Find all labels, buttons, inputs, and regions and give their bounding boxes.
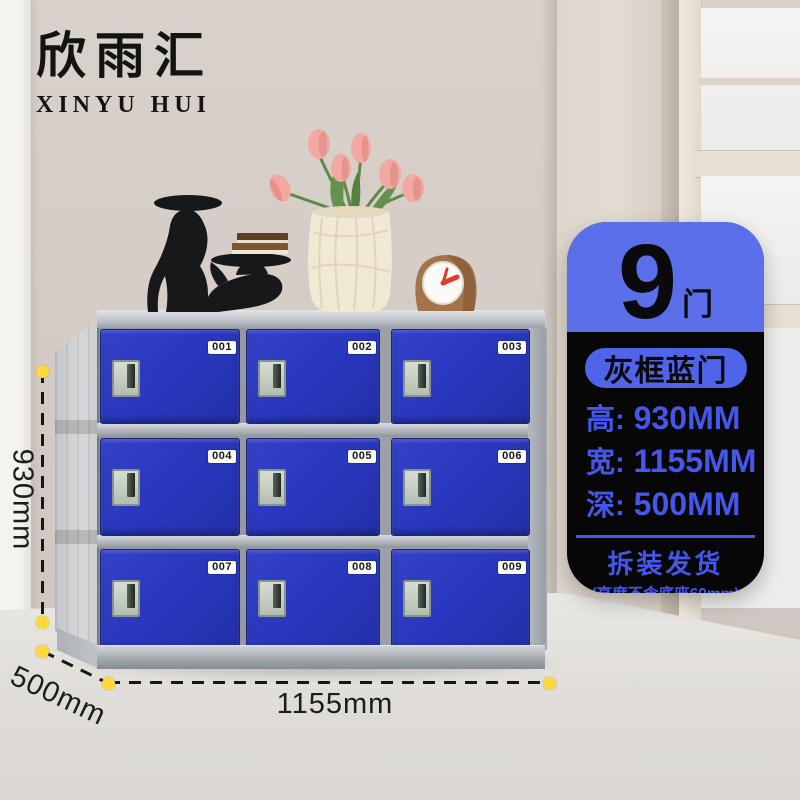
locker-door: 002 [246, 329, 380, 424]
locker-door: 009 [391, 549, 530, 651]
brand-name-english: XINYU HUI [36, 92, 213, 119]
spec-label: 高: [586, 402, 625, 438]
spec-row-depth: 深: 500MM [567, 486, 764, 524]
spec-row-width: 宽: 1155MM [567, 443, 764, 481]
door-number-label: 005 [348, 450, 376, 463]
door-number-label: 008 [348, 561, 376, 574]
door-number-label: 003 [498, 341, 526, 354]
door-handle [112, 469, 140, 506]
door-handle [258, 469, 286, 506]
decor-scene [100, 122, 490, 317]
door-number-label: 006 [498, 450, 526, 463]
spec-value: 1155MM [634, 443, 757, 479]
door-handle [258, 580, 286, 617]
door-count-header: 9 门 [567, 222, 764, 332]
door-count-unit: 门 [682, 279, 713, 324]
cabinet-base [97, 645, 545, 669]
paper-vase [308, 206, 392, 312]
width-dimension-line [108, 681, 549, 684]
cabinet-right-frame [528, 328, 545, 650]
locker-door: 001 [100, 329, 240, 424]
wooden-clock-icon [415, 255, 476, 311]
dimension-dot [543, 677, 556, 690]
door-handle [403, 580, 431, 617]
variant-badge: 灰框蓝门 [585, 348, 747, 388]
spec-label: 宽: [586, 445, 625, 481]
window-glazing-bar [701, 78, 800, 84]
door-number-label: 009 [498, 561, 526, 574]
brand-logo: 欣雨汇 XINYU HUI [36, 16, 213, 119]
product-showcase: 欣雨汇 XINYU HUI 001 002 003 004 005 006 00… [0, 0, 800, 800]
door-number-label: 002 [348, 341, 376, 354]
shipping-text: 拆装发货 [567, 544, 764, 581]
width-dimension-label: 1155mm [240, 688, 430, 721]
product-info-card: 9 门 灰框蓝门 高: 930MM 宽: 1155MM 深: 500MM 拆装发… [567, 222, 764, 593]
card-divider [576, 535, 755, 538]
spec-row-height: 高: 930MM [567, 400, 764, 438]
stacked-books-icon [232, 233, 288, 254]
spec-value: 930MM [634, 400, 741, 436]
door-number-label: 004 [208, 450, 236, 463]
locker-door: 008 [246, 549, 380, 651]
dimension-dot [36, 616, 49, 629]
lying-greyhound-figurine-icon [206, 253, 291, 312]
dimension-dot [36, 645, 49, 658]
locker-door: 006 [391, 438, 530, 536]
height-dimension-line [41, 371, 44, 622]
brand-name-chinese: 欣雨汇 [36, 16, 213, 88]
cabinet-side-panel [55, 318, 100, 665]
spec-value: 500MM [634, 486, 741, 522]
door-handle [403, 469, 431, 506]
locker-door: 003 [391, 329, 530, 424]
door-handle [112, 360, 140, 397]
shipping-note: (高度不含底座60mm) [567, 582, 764, 593]
height-dimension-label: 930mm [6, 444, 39, 556]
spec-panel: 灰框蓝门 高: 930MM 宽: 1155MM 深: 500MM 拆装发货 (高… [567, 348, 764, 593]
locker-door: 005 [246, 438, 380, 536]
door-number-label: 007 [208, 561, 236, 574]
cabinet-row-rail [97, 535, 545, 548]
door-number-label: 001 [208, 341, 236, 354]
spec-label: 深: [586, 488, 625, 524]
locker-door: 004 [100, 438, 240, 536]
cabinet-row-rail [97, 423, 545, 437]
locker-door: 007 [100, 549, 240, 651]
door-handle [258, 360, 286, 397]
door-handle [403, 360, 431, 397]
dimension-dot [36, 365, 49, 378]
door-count: 9 [618, 233, 675, 332]
window-sash-rail [695, 150, 800, 178]
door-handle [112, 580, 140, 617]
dimension-dot [102, 677, 115, 690]
